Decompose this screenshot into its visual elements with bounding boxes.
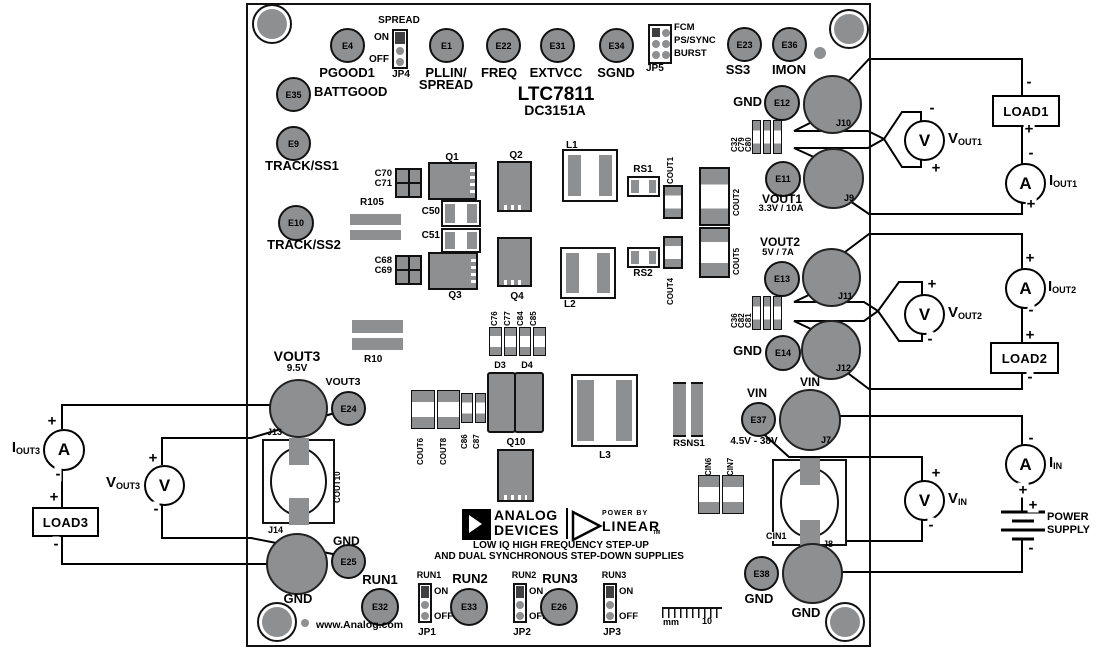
rsns1-resistor (673, 382, 703, 437)
linear-tm-label: TM (653, 531, 660, 536)
rs1-resistor (627, 176, 660, 197)
jp1-run1-label: RUN1 (417, 571, 442, 580)
cout1-label: COUT1 (667, 149, 675, 184)
test-point-e13: E13 (764, 261, 800, 297)
test-point-e1: E1 (429, 28, 464, 63)
j12-label: J12 (836, 364, 851, 373)
adi-brand-line2: DEVICES (494, 523, 559, 538)
jp4-off-label: OFF (363, 55, 389, 66)
run2-label: RUN2 (452, 572, 487, 586)
l1-inductor (562, 149, 618, 202)
cout8-label: COUT8 (440, 431, 448, 465)
c68-c69-capacitors (395, 255, 422, 285)
ruler-unit-label: mm (663, 618, 679, 627)
jp5-jumper (648, 24, 672, 64)
jp1-pad-icon (421, 601, 429, 609)
c86-label: C86 (461, 425, 469, 449)
iin-ammeter: A (1005, 444, 1046, 485)
jp4-on-label: ON (368, 33, 389, 44)
q3-mosfet (428, 252, 478, 290)
power-by-label: POWER BY (602, 510, 648, 517)
iout2-minus-sign: - (1028, 303, 1035, 318)
cin7-label: CIN7 (727, 446, 735, 476)
j14-turret (266, 533, 328, 595)
l3-inductor (571, 374, 638, 447)
cout6-label: COUT6 (417, 431, 425, 465)
jp2-on-label: ON (529, 587, 543, 597)
imon-label: IMON (772, 63, 806, 77)
l2-label: L2 (564, 300, 576, 311)
q10-label: Q10 (507, 438, 526, 449)
c70-c71-capacitors (395, 168, 422, 198)
pgood1-label: PGOOD1 (319, 66, 375, 80)
j10-label: J10 (836, 119, 851, 128)
vout2-rating: 5V / 7A (762, 248, 794, 258)
iout3-minus-sign: - (55, 467, 62, 482)
linear-logo-label: LINEAR (602, 519, 660, 534)
analog-devices-logo-icon (462, 509, 491, 540)
jp4-shunt-icon (395, 32, 405, 44)
jp5-name: JP5 (646, 64, 664, 75)
vout3-rating: 9.5V (287, 364, 308, 375)
cin1-label: CIN1 (766, 532, 787, 541)
jp5-pssync-label: PS/SYNC (674, 36, 716, 46)
d4-diode (514, 372, 544, 433)
jp3-jumper (603, 583, 617, 623)
test-point-e10: E10 (278, 205, 314, 241)
vout2-voltmeter: V (904, 294, 945, 335)
c77-label: C77 (504, 304, 512, 326)
jp4-spread-label: SPREAD (378, 16, 420, 27)
cout1-capacitor (663, 185, 683, 219)
vout2-meter-label: VOUT2 (948, 305, 982, 321)
extvcc-label: EXTVCC (530, 66, 583, 80)
jp2-pad-icon (516, 612, 524, 620)
test-point-e37: E37 (741, 402, 776, 437)
jp5-burst-label: BURST (674, 49, 707, 59)
cout10-label: COUT10 (334, 461, 342, 503)
jp1-name: JP1 (418, 628, 436, 639)
c87-label: C87 (473, 425, 481, 449)
mounting-hole-icon (825, 602, 865, 642)
jp3-on-label: ON (619, 587, 633, 597)
vout2-plus-sign: + (927, 277, 938, 292)
jp1-pad-icon (421, 612, 429, 620)
r10-label: R10 (364, 355, 382, 366)
power-supply-label-line1: POWER (1047, 512, 1089, 524)
c86-c87-capacitor-bank (461, 393, 486, 423)
j13-label: J13 (267, 428, 282, 437)
run3-label: RUN3 (542, 572, 577, 586)
via-dot-icon (301, 619, 309, 627)
j9-label: J9 (844, 194, 854, 203)
vout1-plus-sign: + (931, 161, 942, 176)
c76-c85-capacitor-bank (489, 327, 546, 356)
rs2-resistor (627, 247, 660, 268)
vin-voltmeter: V (904, 480, 945, 521)
j12-turret (801, 320, 861, 380)
board-subtitle: DC3151A (524, 103, 585, 118)
battery-icon (1001, 512, 1045, 539)
r105-label: R105 (360, 198, 384, 209)
load1-plus-sign: + (1024, 122, 1035, 137)
gnd-e38-label: GND (745, 592, 774, 606)
gnd-j14-label: GND (284, 592, 313, 606)
battery-minus-sign: - (1028, 541, 1035, 556)
vout1-meter-label: VOUT1 (948, 131, 982, 147)
j7-turret (779, 389, 841, 451)
jp1-off-label: OFF (434, 612, 453, 622)
jp2-name: JP2 (513, 628, 531, 639)
logo-divider (566, 508, 568, 539)
jp4-pad-icon (396, 47, 404, 55)
jp2-run2-label: RUN2 (512, 571, 537, 580)
test-point-e38: E38 (744, 556, 779, 591)
jp1-shunt-icon (421, 586, 429, 598)
vin-plus-sign: + (931, 466, 942, 481)
vout3-plus-sign: + (148, 451, 159, 466)
rsns1-label: RSNS1 (673, 439, 705, 449)
jp5-pad-icon (652, 40, 660, 48)
d3-diode (487, 372, 516, 433)
vout3-voltmeter: V (144, 465, 185, 506)
track-ss2-label: TRACK/SS2 (267, 238, 341, 252)
jp3-name: JP3 (603, 628, 621, 639)
jp3-pad-icon (606, 612, 614, 620)
d4-label: D4 (521, 361, 533, 370)
d3-label: D3 (494, 361, 506, 370)
c51-capacitor (441, 228, 481, 253)
l2-inductor (560, 247, 616, 299)
c71-label: C71 (372, 179, 392, 189)
r105-resistor (350, 214, 401, 240)
vout3-label: VOUT3 (274, 349, 321, 364)
test-point-e36: E36 (772, 27, 807, 62)
jp1-on-label: ON (434, 587, 448, 597)
battery-plus-sign: + (1028, 498, 1039, 513)
gnd2-label: GND (722, 344, 762, 358)
c36-c82-c81-capacitor-bank (752, 296, 782, 330)
vout1-minus-sign: - (929, 101, 936, 116)
vin-range-label: 4.5V - 38V (730, 437, 777, 448)
cout10-pad-icon (289, 498, 309, 525)
iin-meter-label: IIN (1049, 455, 1062, 471)
test-point-e25: E25 (331, 544, 366, 579)
j9-turret (803, 148, 864, 209)
gnd1-label: GND (726, 95, 762, 109)
iout2-meter-label: IOUT2 (1048, 279, 1076, 295)
cout10-pad-icon (289, 438, 309, 465)
website-label: www.Analog.com (316, 620, 403, 631)
adi-brand-line1: ANALOG (494, 508, 558, 523)
jp5-pad-icon (652, 51, 660, 59)
jp3-run3-label: RUN3 (602, 571, 627, 580)
c50-capacitor (441, 200, 481, 227)
l3-label: L3 (599, 451, 611, 462)
test-point-e23: E23 (727, 27, 762, 62)
test-point-e24: E24 (331, 391, 366, 426)
cout4-capacitor (663, 236, 683, 269)
cout5-capacitor (699, 227, 730, 278)
c51-label: C51 (418, 231, 440, 242)
vin-label-e37: VIN (747, 387, 767, 400)
q2-label: Q2 (509, 151, 522, 162)
test-point-e22: E22 (486, 28, 521, 63)
c69-label: C69 (372, 266, 392, 276)
test-point-e33: E33 (450, 588, 488, 626)
vin-minus-sign: - (928, 518, 935, 533)
jp1-jumper (418, 583, 432, 623)
gnd-j8-label: GND (792, 606, 821, 620)
freq-label: FREQ (481, 66, 517, 80)
test-point-e31: E31 (540, 28, 575, 63)
tagline-line1: LOW IQ HIGH FREQUENCY STEP-UP (473, 541, 649, 552)
cout5-label: COUT5 (733, 230, 741, 275)
load3-box: LOAD3 (32, 507, 99, 537)
iout2-plus-sign: + (1025, 251, 1036, 266)
rs2-label: RS2 (633, 269, 652, 280)
jp4-name: JP4 (392, 70, 410, 81)
q1-mosfet (428, 162, 477, 200)
iin-plus-sign: + (1018, 483, 1029, 498)
jp5-fcm-label: FCM (674, 23, 695, 33)
q2-mosfet (497, 161, 532, 212)
demo-board-diagram: LTC7811 DC3151A E4 PGOOD1 E35 BATTGOOD S… (0, 0, 1100, 649)
power-supply-label-line2: SUPPLY (1047, 525, 1090, 537)
jp5-pad-icon (662, 51, 670, 59)
jp2-jumper (513, 583, 527, 623)
iout1-meter-label: IOUT1 (1049, 173, 1077, 189)
load3-plus-sign: + (49, 490, 60, 505)
vout3-meter-label: VOUT3 (96, 475, 140, 491)
test-point-e12: E12 (764, 85, 800, 121)
iout2-ammeter: A (1005, 268, 1046, 309)
mounting-hole-icon (252, 4, 292, 44)
q4-mosfet (497, 237, 532, 287)
j8-turret (782, 543, 843, 604)
iout1-minus-sign: - (1028, 146, 1035, 161)
tagline-line2: AND DUAL SYNCHRONOUS STEP-DOWN SUPPLIES (434, 552, 684, 563)
ss3-label: SS3 (726, 63, 751, 77)
cout2-capacitor (699, 167, 730, 226)
c85-label: C85 (530, 304, 538, 326)
cin1-pad-icon (800, 458, 820, 485)
test-point-e26: E26 (540, 588, 578, 626)
test-point-e4: E4 (330, 28, 365, 63)
j11-label: J11 (838, 292, 853, 301)
jp3-pad-icon (606, 601, 614, 609)
test-point-e34: E34 (599, 28, 634, 63)
battgood-label: BATTGOOD (314, 85, 387, 99)
cin6-cin7-capacitor-bank (698, 475, 744, 514)
test-point-e35: E35 (276, 77, 311, 112)
c76-label: C76 (491, 304, 499, 326)
track-ss1-label: TRACK/SS1 (265, 159, 339, 173)
load3-minus-sign: - (53, 537, 60, 552)
mounting-hole-icon (257, 602, 297, 642)
run1-label: RUN1 (362, 573, 397, 587)
iout1-plus-sign: + (1026, 197, 1037, 212)
vout1-rating: 3.3V / 10A (759, 204, 804, 214)
jp5-pad-icon (662, 29, 670, 37)
test-point-e14: E14 (765, 335, 801, 371)
cout2-label: COUT2 (733, 171, 741, 216)
c50-label: C50 (418, 207, 440, 218)
jp2-shunt-icon (516, 586, 524, 598)
jp3-off-label: OFF (619, 612, 638, 622)
iout3-meter-label: IOUT3 (6, 440, 40, 456)
jp3-shunt-icon (606, 586, 614, 598)
j7-label: J7 (821, 436, 831, 445)
load2-plus-sign: + (1025, 328, 1036, 343)
c32-c79-c80-capacitor-bank (752, 120, 782, 154)
cout4-label: COUT4 (667, 270, 675, 305)
mounting-hole-icon (829, 9, 869, 49)
ruler-max-label: 10 (702, 617, 712, 626)
jp5-shunt-icon (652, 28, 660, 37)
vout2-minus-sign: - (927, 332, 934, 347)
pllin-label-line2: SPREAD (419, 78, 473, 92)
q4-label: Q4 (510, 292, 523, 303)
j10-turret (803, 75, 862, 134)
q3-label: Q3 (448, 291, 461, 302)
j14-label: J14 (268, 526, 283, 535)
jp4-jumper (392, 29, 408, 69)
load2-minus-sign: - (1027, 370, 1034, 385)
cout10-capacitor (262, 439, 335, 524)
vout3-minus-sign: - (153, 502, 160, 517)
iout3-ammeter: A (43, 429, 85, 471)
c84-label: C84 (517, 304, 525, 326)
rs1-label: RS1 (633, 165, 652, 176)
jp4-pad-icon (396, 58, 404, 66)
load2-box: LOAD2 (990, 342, 1059, 374)
cout6-cout8-capacitor-bank (411, 390, 460, 429)
sgnd-label: SGND (597, 66, 635, 80)
test-point-e9: E9 (276, 126, 311, 161)
vout1-voltmeter: V (904, 120, 945, 161)
load1-minus-sign: - (1026, 75, 1033, 90)
vin-label-j7: VIN (800, 376, 820, 389)
vout3-e24-label: VOUT3 (325, 377, 360, 388)
r10-resistor (352, 320, 403, 350)
cin6-label: CIN6 (705, 446, 713, 476)
jp5-pad-icon (662, 40, 670, 48)
q10-mosfet (497, 449, 534, 502)
jp2-pad-icon (516, 601, 524, 609)
vin-meter-label: VIN (948, 491, 967, 507)
iout3-plus-sign: + (47, 414, 58, 429)
via-dot-icon (814, 47, 826, 59)
